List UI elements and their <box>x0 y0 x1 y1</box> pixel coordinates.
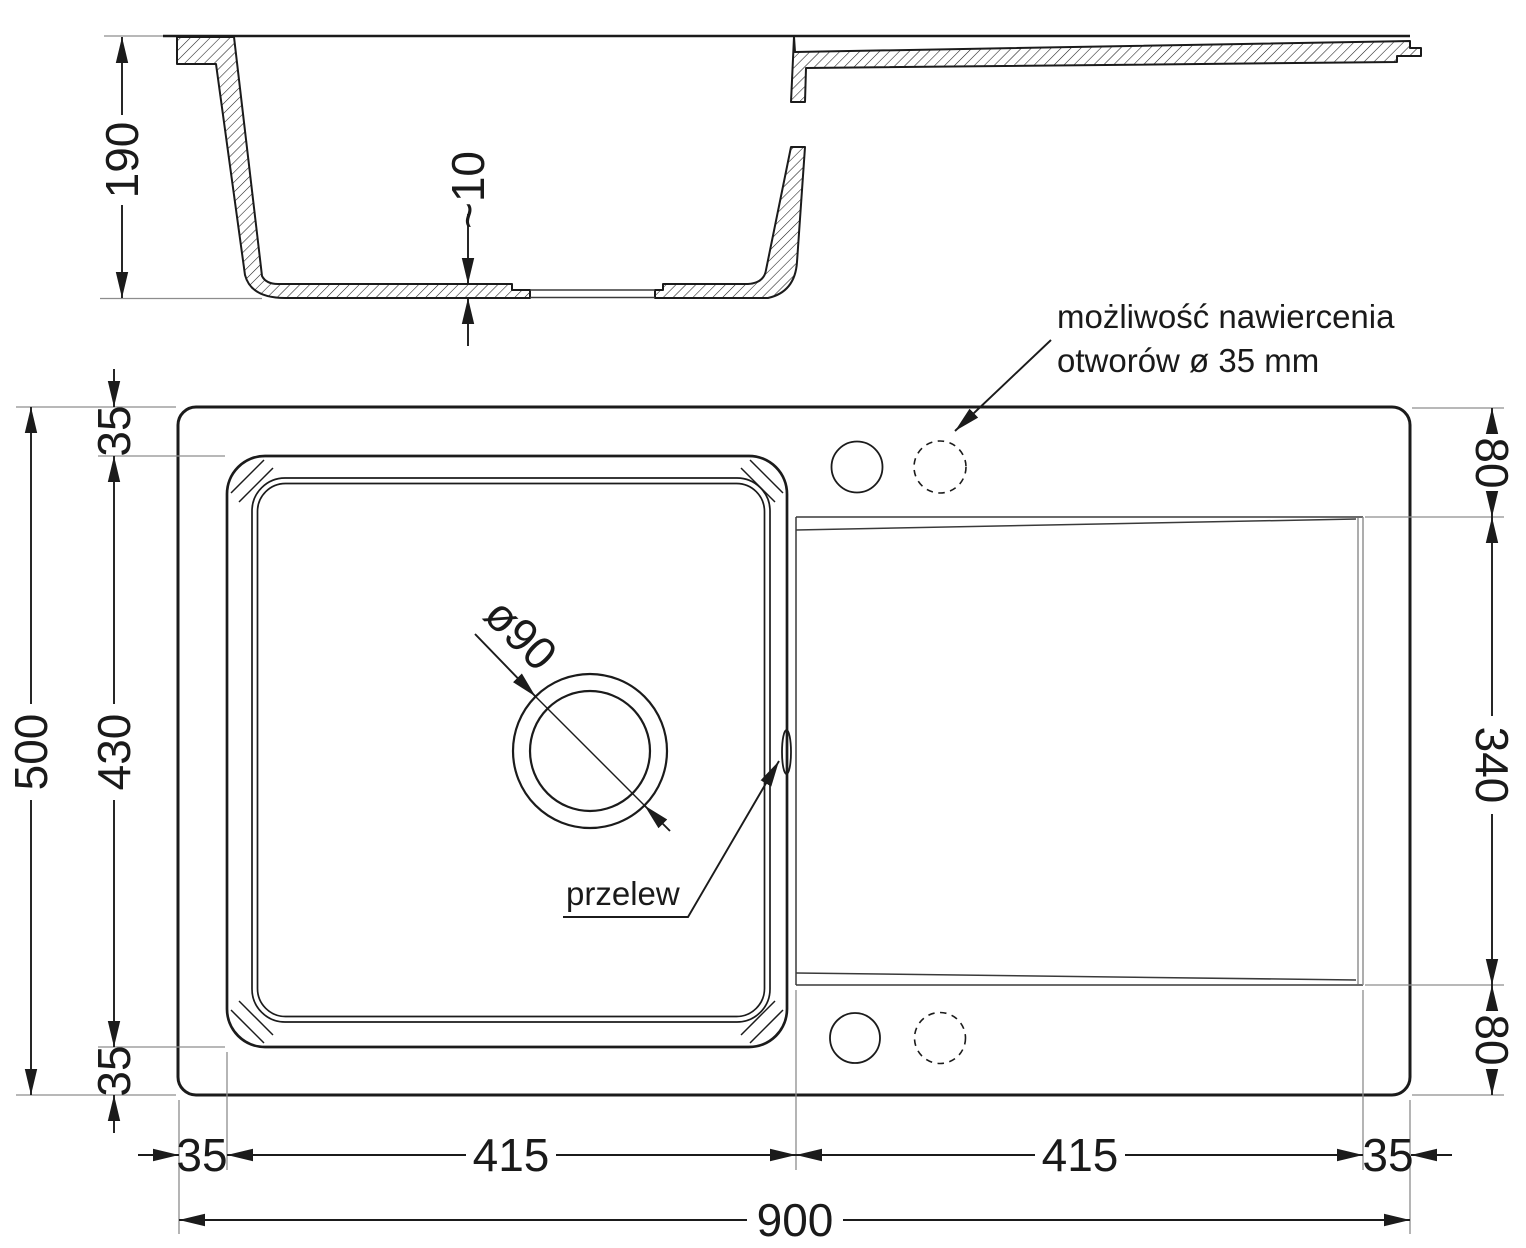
basin-width-label: 415 <box>473 1129 550 1181</box>
overflow-callout: przelew <box>563 761 779 917</box>
drainer-top-offset-label: 80 <box>1466 437 1518 488</box>
plan-total-height-label: 500 <box>5 714 57 791</box>
dim-section-height: 190 <box>96 37 148 298</box>
section-height-label: 190 <box>96 122 148 199</box>
drain-diameter-label: ø90 <box>475 588 568 681</box>
optional-hole-top-dashed <box>914 441 966 493</box>
faucet-hole-bottom <box>830 1013 880 1063</box>
basin-corner-chamfers <box>231 460 783 1043</box>
dim-drain-diameter: ø90 <box>475 588 670 831</box>
drainer-board <box>796 517 1363 985</box>
drilling-note: możliwość nawiercenia otworów ø 35 mm <box>955 298 1395 431</box>
sink-technical-drawing: 190 ~10 <box>0 0 1526 1248</box>
plan-view: ø90 przelew możliwość nawiercenia otworó… <box>5 298 1518 1246</box>
drawing-canvas: 190 ~10 <box>0 0 1526 1248</box>
basin-outer-outline <box>227 456 787 1047</box>
basin-top-margin-label: 35 <box>88 405 140 456</box>
dim-right-column: 80 340 80 <box>1365 408 1518 1095</box>
drilling-note-arrow <box>955 340 1051 431</box>
basin-floor-outline-inner <box>258 484 765 1017</box>
faucet-hole-top <box>832 442 883 493</box>
basin-depth-label: 430 <box>88 714 140 791</box>
basin-bottom-margin-label: 35 <box>88 1045 140 1096</box>
dim-bottom-rows: 35 415 415 35 900 <box>138 990 1452 1246</box>
basin-floor-outline-outer <box>252 478 770 1022</box>
bottom-right-margin-label: 35 <box>1362 1129 1413 1181</box>
drainer-span-label: 340 <box>1466 727 1518 804</box>
drilling-note-line1: możliwość nawiercenia <box>1057 298 1395 335</box>
total-width-label: 900 <box>757 1194 834 1246</box>
dim-bottom-thickness: ~10 <box>442 151 494 346</box>
drilling-note-line2: otworów ø 35 mm <box>1057 342 1319 379</box>
optional-hole-bottom-dashed <box>915 1013 966 1064</box>
section-right-wall-and-drainboard <box>791 37 1421 102</box>
bottom-thickness-label: ~10 <box>442 151 494 229</box>
overflow-label: przelew <box>566 875 680 912</box>
drainer-bottom-offset-label: 80 <box>1466 1014 1518 1065</box>
sink-outer-outline <box>178 407 1410 1095</box>
section-right-wall-lower-and-floor <box>655 147 805 298</box>
dim-left-column: 500 35 430 35 <box>5 369 225 1133</box>
drainer-width-label: 415 <box>1042 1129 1119 1181</box>
bottom-left-margin-label: 35 <box>176 1129 227 1181</box>
